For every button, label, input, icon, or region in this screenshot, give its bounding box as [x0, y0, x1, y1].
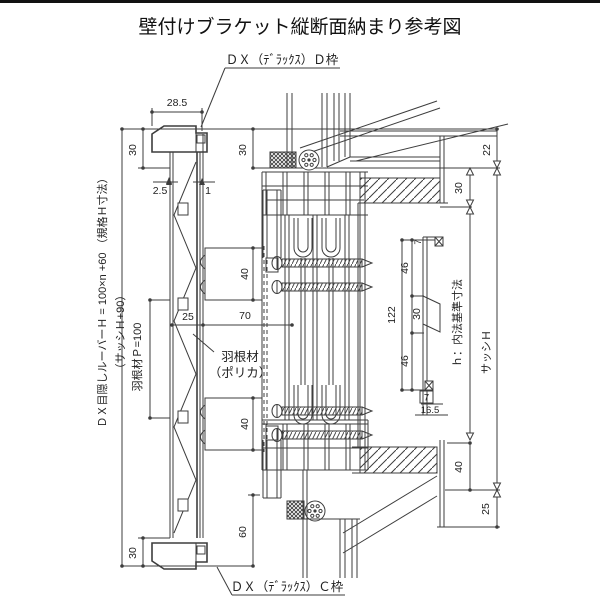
- label-d-frame: ＤＸ（ﾃﾞﾗｯｸｽ）Ｄ枠: [226, 53, 339, 67]
- right-dimensions: 22 サッシＨ 25 30 ｈ：内法基準寸法 40: [450, 127, 501, 529]
- dim-1: 1: [205, 185, 211, 197]
- label-sash-relation: （サッシＨ+90）: [114, 290, 127, 375]
- dim-46-top: 46: [399, 262, 411, 274]
- bracket-detail: 122 46 30 46 7 7 16.5: [386, 237, 448, 416]
- label-sash-height: サッシＨ: [480, 330, 493, 374]
- dim-30-wall: 30: [453, 182, 465, 194]
- mounting-screws: [272, 257, 372, 442]
- dim-70-offset: 70: [239, 310, 251, 322]
- label-inner-standard: ｈ：内法基準寸法: [450, 279, 464, 367]
- label-blade-2: （ポリカ）: [209, 366, 272, 380]
- dim-40-bottom-blade: 40: [239, 418, 251, 430]
- label-blade-1: 羽根材: [221, 350, 259, 364]
- dim-7-bottom: 7: [424, 393, 429, 404]
- dim-46-bottom: 46: [399, 355, 411, 367]
- top-border-bar: [0, 0, 600, 3]
- wall-section: [343, 136, 500, 553]
- dim-28-5: 28.5: [167, 97, 188, 109]
- section-drawing: 壁付けブラケット縦断面納まり参考図: [0, 0, 600, 600]
- label-c-frame: ＤＸ（ﾃﾞﾗｯｸｽ）Ｃ枠: [231, 580, 344, 594]
- label-blade-pitch: 羽根材Ｐ=100: [130, 323, 144, 392]
- dim-30-top-right: 30: [237, 144, 249, 156]
- dim-16-5: 16.5: [421, 405, 440, 416]
- left-vertical-texts: ＤＸ目隠しルーバーＨ = 100×n +60 （規格Ｈ寸法） （サッシＨ+90）…: [95, 172, 144, 427]
- dim-25-offset: 25: [182, 311, 194, 323]
- dim-122: 122: [386, 306, 398, 324]
- dim-22: 22: [481, 144, 493, 156]
- label-louver-height-formula: ＤＸ目隠しルーバーＨ = 100×n +60 （規格Ｈ寸法）: [95, 172, 109, 427]
- dim-30-bottom: 30: [127, 547, 139, 559]
- dim-60-bottom: 60: [237, 526, 249, 538]
- dim-40-top-blade: 40: [239, 268, 251, 280]
- dim-25-bottom: 25: [480, 503, 492, 515]
- dim-2-5: 2.5: [153, 185, 168, 197]
- dim-7-top: 7: [413, 239, 424, 244]
- dim-30-top-left: 30: [127, 144, 139, 156]
- drawing-page: 壁付けブラケット縦断面納まり参考図: [0, 0, 600, 600]
- drawing-title: 壁付けブラケット縦断面納まり参考図: [138, 15, 461, 38]
- dim-40-sill: 40: [453, 461, 465, 473]
- dim-30-slot: 30: [411, 308, 423, 320]
